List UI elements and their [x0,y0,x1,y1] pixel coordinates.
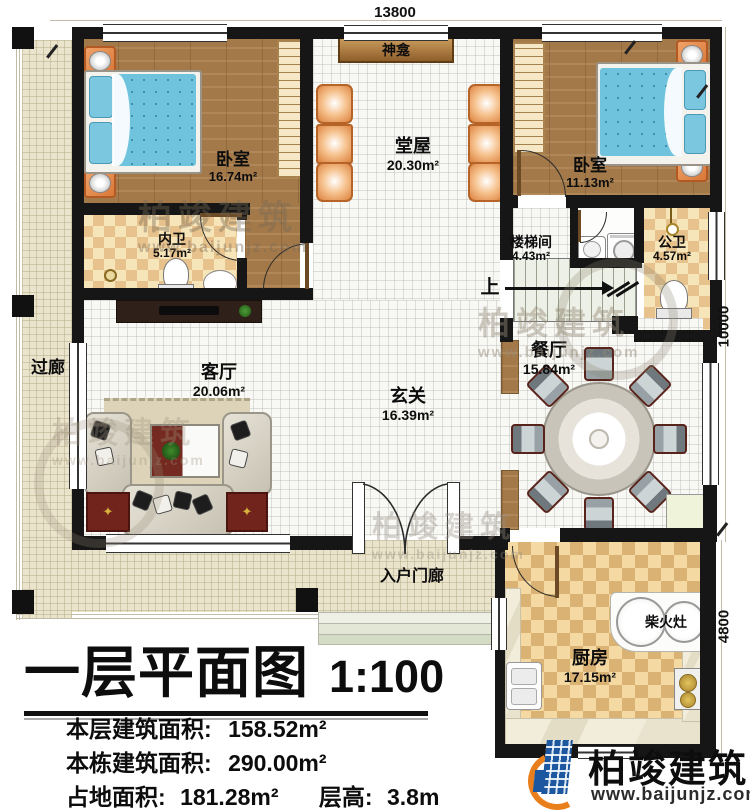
window-bedroomR-top [542,24,662,42]
bed-right [596,62,712,166]
plant-small [239,305,251,317]
stats-line-3: 占地面积: 181.28m² 层高: 3.8m [66,778,439,811]
wall-innerbath-south [72,288,313,300]
room-area: 20.30m² [368,157,458,173]
stats-line-2: 本栋建筑面积: 290.00m² [66,744,327,778]
dimension-right-upper: 10000 [716,297,733,357]
bed-left [84,70,202,174]
room-name: 楼梯间 [491,234,571,250]
fridge [666,494,704,530]
window-dining-right [702,363,719,485]
room-area: 11.13m² [550,176,630,191]
room-label-kitchen: 厨房 17.15m² [550,648,630,685]
sofa-pillow [172,490,192,510]
room-label-stairwell: 楼梯间 4.43m² [491,234,571,264]
kitchen-sink [506,662,542,710]
bed-pillow [89,76,113,118]
tv-cabinet [116,300,262,323]
entry-door-arcs [352,482,460,558]
dim-tick [716,522,728,536]
room-name: 厨房 [550,648,630,669]
room-name: 卧室 [193,150,273,170]
window-bedroomL-top [103,24,227,42]
wall-bedroomR-south-left [500,195,518,208]
brand-logo: 柏竣建筑 www.baijunjz.com [528,738,748,808]
title-block: 一层平面图 1:100 [24,628,484,720]
window-hall-top [344,25,448,41]
window-kitchen-left [491,598,507,650]
hall-chair [316,124,353,164]
stairs-up-label: 上 [478,277,502,299]
stat-value: 290.00m² [228,750,326,776]
room-area: 5.17m² [137,247,207,261]
floor-drain-icon [104,269,117,282]
drawing-scale: 1:100 [329,651,444,703]
room-name: 公卫 [637,234,707,250]
dining-chair [653,424,687,454]
room-label-corridor: 过廊 [24,358,72,378]
wall-dining-kitchen [560,528,716,542]
stat-value: 158.52m² [228,716,326,742]
stat-value: 3.8m [387,784,439,810]
bed-pillow [89,122,113,164]
room-label-foyer: 玄关 16.39m² [368,386,448,423]
room-name: 入户门廊 [374,568,450,586]
room-label-publicbath: 公卫 4.57m² [637,234,707,264]
window-publicbath-right [708,212,725,280]
wall-kitchen-east [700,542,716,758]
room-area: 16.39m² [368,407,448,423]
hall-chair [316,162,353,202]
dining-chair [584,497,614,531]
wood-stove-label: 柴火灶 [630,614,702,630]
stat-label: 占地面积: [66,784,166,810]
wall-kitchen-west-upper [495,542,505,602]
shrine-label: 神龛 [382,40,410,60]
page-title: 一层平面图 [24,628,309,709]
door-leaf-bedroomR [517,150,521,196]
room-area: 4.43m² [491,250,571,264]
room-name: 堂屋 [368,136,458,157]
stats-line-1: 本层建筑面积: 158.52m² [66,710,327,744]
stat-value: 181.28m² [180,784,278,810]
room-name: 玄关 [368,386,448,407]
room-area: 16.74m² [193,170,273,185]
eave-line-right-1 [725,27,726,542]
wall-kitchen-west-lower [495,648,505,758]
door-leaf-bedroomL [305,243,309,289]
light-pull-cord [670,208,672,224]
stat-label: 本栋建筑面积: [66,750,212,776]
dimension-right-lower: 4800 [716,597,733,657]
stat-label: 本层建筑面积: [66,716,212,742]
room-name: 卧室 [550,156,630,176]
logo-block [533,770,546,792]
brand-url: www.baijunjz.com [591,784,750,805]
wardrobe-bedroomR [513,42,545,154]
room-label-bedroomR: 卧室 11.13m² [550,156,630,190]
room-area: 20.06m² [179,383,259,399]
watermark-ring [556,258,678,380]
side-table: ✦ [226,492,268,532]
porch-column-w [12,295,34,317]
room-label-living: 客厅 20.06m² [179,362,259,399]
wall-hall-east-lower [500,318,513,342]
wall-bedroomL-east [300,27,313,243]
eave-line-left-2 [19,28,20,620]
room-label-hall: 堂屋 20.30m² [368,136,458,173]
room-name: 柴火灶 [630,614,702,630]
wall-right-upper [710,27,722,337]
bed-blanket-fold [664,68,682,156]
hall-chair [316,84,353,124]
wall-dining-kitchen-stub [500,528,510,542]
bed-pillow [684,114,706,154]
porch-column-sw [12,590,34,614]
floor-plan-canvas: 神龛 [0,0,750,811]
tv [159,306,219,315]
dining-chair [511,424,545,454]
door-leaf-publicbath [578,210,581,242]
room-label-innerbath: 内卫 5.17m² [137,231,207,261]
dimension-top: 13800 [355,4,435,21]
wall-nook-west [570,208,578,262]
room-name: 内卫 [137,231,207,247]
stat-label: 层高: [319,784,373,810]
wall-bedroomR-south-right [566,195,712,208]
porch-column-s [296,588,318,612]
dining-sideboard-lower [501,470,519,530]
room-area: 17.15m² [550,669,630,685]
porch-column-nw [12,27,34,49]
room-name: 过廊 [24,358,72,378]
wall-hall-east-upper [500,27,513,260]
room-area: 4.57m² [637,250,707,264]
brand-logo-icon [528,740,584,806]
watermark-ring [34,418,164,548]
room-label-entryporch: 入户门廊 [374,568,450,586]
eave-line-left-1 [16,28,17,620]
door-leaf-kitchen [555,546,559,598]
room-label-bedroomL: 卧室 16.74m² [193,150,273,184]
up-text: 上 [478,277,502,299]
room-name: 客厅 [179,362,259,383]
door-leaf-innerbath [200,213,242,217]
plant-coffee-table [162,442,180,460]
gas-stove [674,668,702,710]
